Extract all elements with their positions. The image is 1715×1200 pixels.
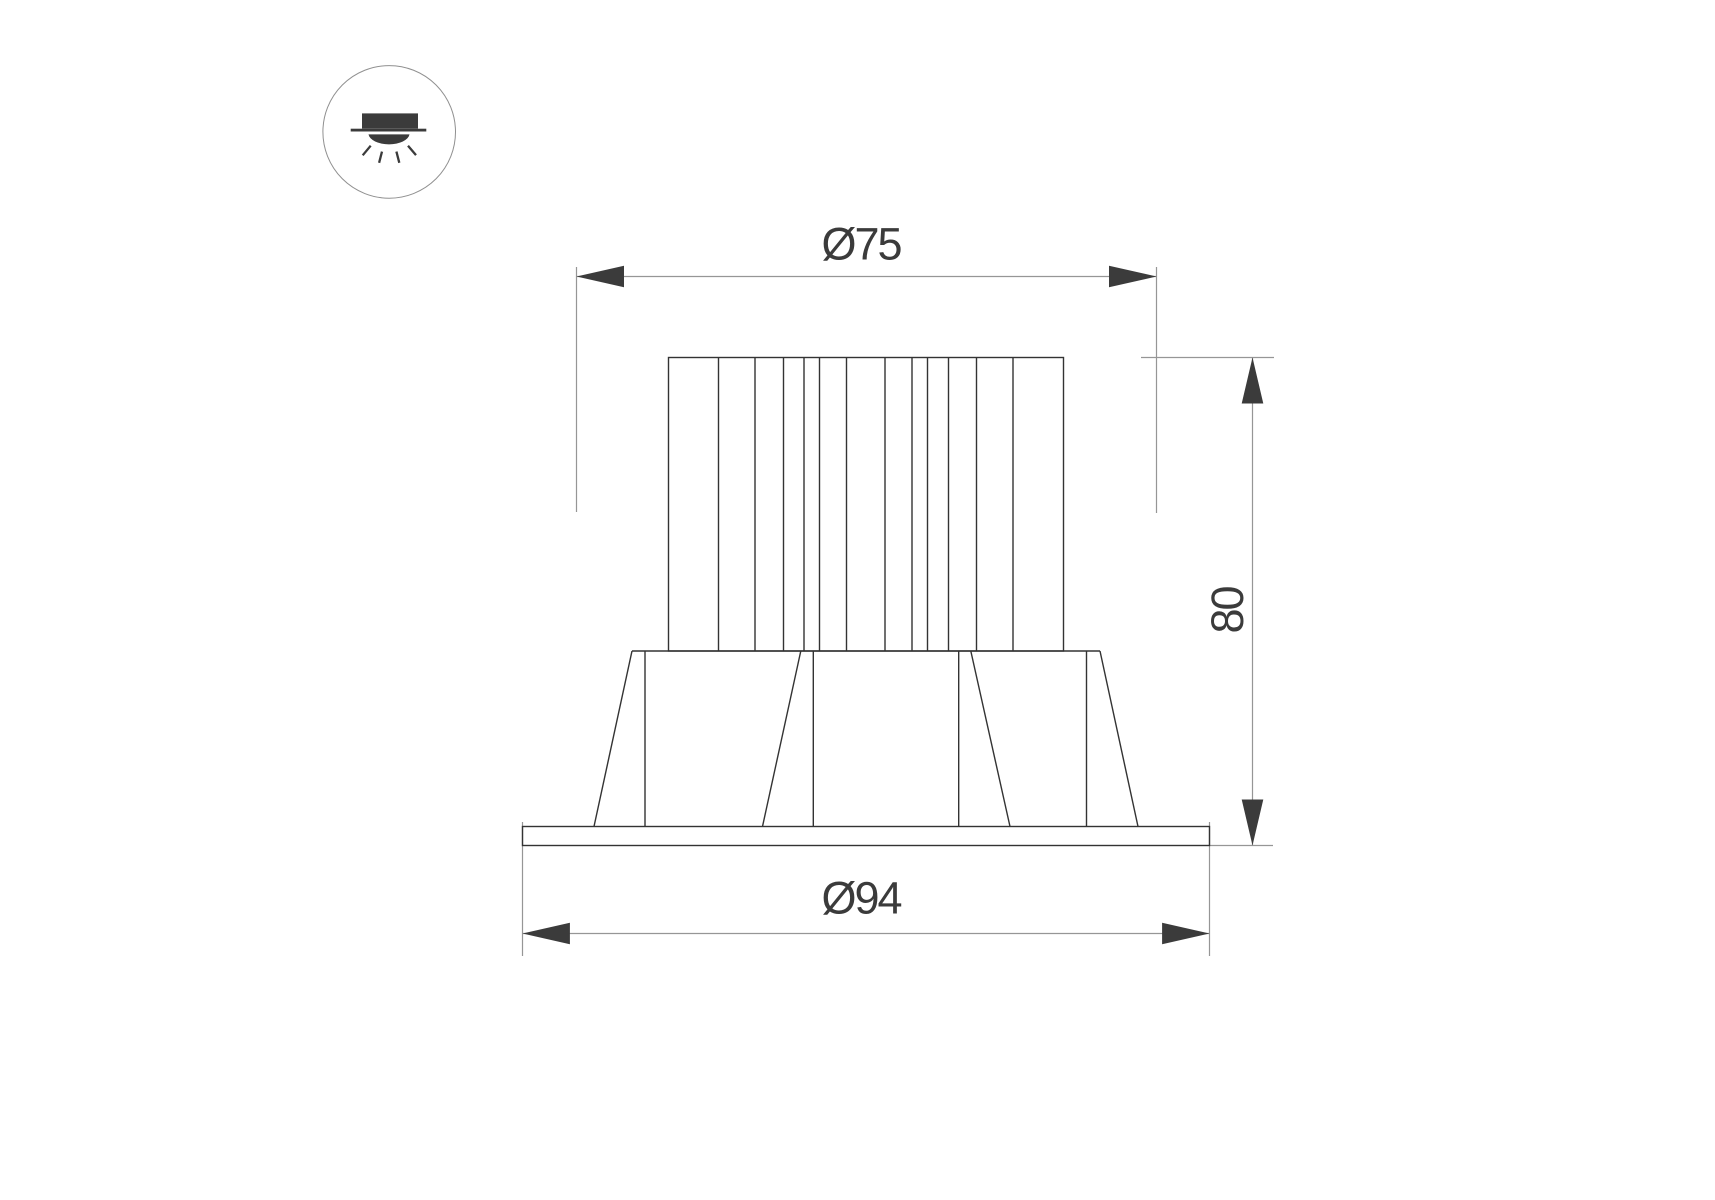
svg-text:Ø75: Ø75 [821, 219, 901, 270]
svg-text:80: 80 [1202, 587, 1253, 634]
svg-text:Ø94: Ø94 [821, 873, 901, 924]
